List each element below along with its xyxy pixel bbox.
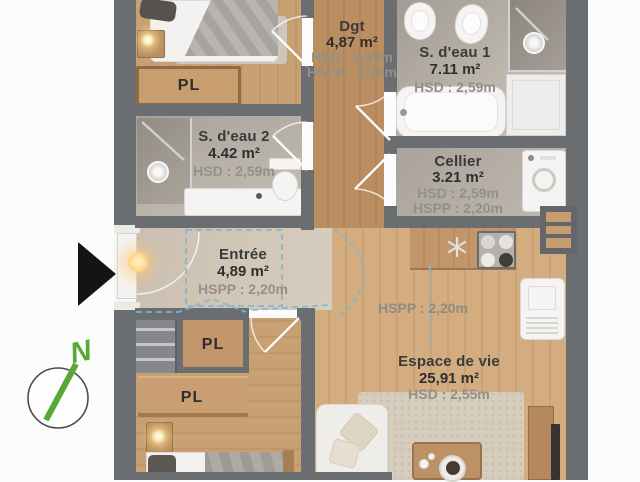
wall-sdeau2-entree bbox=[135, 216, 314, 228]
room-label-entree: Entrée 4,89 m² HSPP : 2,20m bbox=[198, 246, 288, 297]
shower-head-icon bbox=[525, 34, 543, 52]
lamp-icon bbox=[141, 33, 155, 47]
wall-bottom bbox=[114, 472, 392, 480]
niche-shelf-wood bbox=[546, 212, 571, 248]
north-label: N bbox=[67, 334, 95, 370]
pl-label: PL bbox=[202, 336, 224, 354]
wall-entree-bed2 bbox=[135, 308, 249, 320]
room-label-dgt: Dgt 4,87 m² HSD : 2,59m HSPP : 2,20m bbox=[307, 19, 397, 79]
compass-needle-icon bbox=[46, 364, 76, 420]
burner-icon bbox=[481, 235, 495, 249]
faucet-icon bbox=[256, 193, 262, 199]
bowl bbox=[419, 459, 429, 469]
room-label-sdeau1: S. d'eau 1 7.11 m² HSD : 2,59m bbox=[414, 44, 496, 95]
fridge-grill bbox=[526, 314, 558, 334]
burner-icon bbox=[481, 253, 495, 267]
pl-label: PL bbox=[181, 389, 203, 407]
faucet-icon bbox=[400, 109, 407, 116]
wall-sdeau1-cellier bbox=[384, 136, 568, 148]
niche-shelf-divider bbox=[546, 234, 571, 238]
bathtub-basin bbox=[404, 92, 498, 132]
floor-plan-canvas: { "plan": { "compass": { "north_label": … bbox=[0, 0, 640, 480]
compass: N bbox=[28, 334, 96, 428]
wall-exterior-left-bottom bbox=[114, 310, 136, 480]
washer-tray bbox=[540, 156, 556, 160]
niche-shelf-divider bbox=[546, 222, 571, 226]
wall-bed2-espace bbox=[301, 316, 315, 480]
toilet-lid bbox=[411, 10, 429, 32]
ceiling-height-annotation: HSPP : 2,20m bbox=[378, 300, 468, 316]
wall-entree-bed2 bbox=[297, 308, 315, 320]
bowl bbox=[446, 461, 460, 475]
tv-screen bbox=[551, 424, 560, 480]
shower-cabin-door bbox=[512, 80, 560, 130]
washer-door-icon bbox=[532, 168, 556, 192]
pl-label: PL bbox=[178, 77, 200, 95]
room-label-espace: Espace de vie 25,91 m² HSD : 2,55m bbox=[398, 354, 500, 402]
room-label-sdeau2: S. d'eau 2 4.42 m² HSD : 2,59m bbox=[193, 128, 275, 179]
lamp-icon bbox=[151, 429, 166, 444]
fridge-panel bbox=[528, 286, 556, 310]
wall-corridor-left bbox=[301, 0, 314, 18]
shower-head-icon bbox=[149, 163, 167, 181]
burner-icon bbox=[499, 235, 513, 249]
shelf-unit bbox=[135, 317, 177, 373]
bowl bbox=[428, 453, 435, 460]
entrance-light-icon bbox=[127, 251, 149, 273]
washer-dial-icon bbox=[528, 155, 534, 161]
wall-exterior-left-top bbox=[114, 0, 136, 225]
room-label-cellier: Cellier 3.21 m² HSD : 2,59m HSPP : 2,20m bbox=[413, 154, 503, 217]
compass-circle bbox=[28, 368, 88, 428]
wall-bed1-sdeau2 bbox=[135, 104, 302, 116]
burner-icon bbox=[499, 253, 513, 267]
entrance-arrow-icon bbox=[78, 242, 116, 306]
